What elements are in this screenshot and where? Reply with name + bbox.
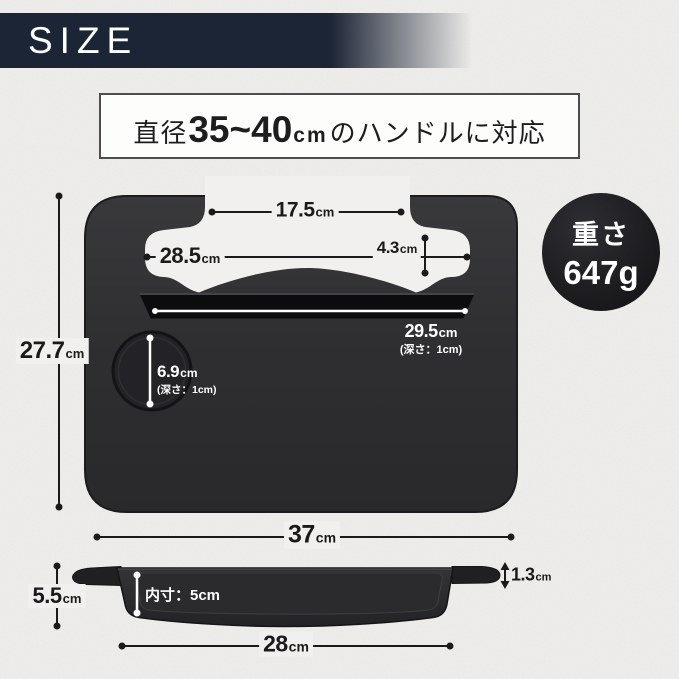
dim-side-height-label: 5.5cm [29, 584, 86, 608]
dim-total-width-label: 37cm [284, 522, 340, 549]
dim-cup-holder-label: 6.9cm (深さ：1cm) [157, 363, 217, 396]
weight-badge: 重さ 647g [542, 193, 660, 311]
product-size-infographic: SIZE 直径 35~40 cm のハンドルに対応 [0, 0, 679, 679]
headline-suffix: のハンドルに対応 [330, 113, 546, 150]
dim-inner-depth-label: 内寸：5cm [145, 588, 220, 603]
dim-pen-tray-label: 29.5cm (深さ：1cm) [371, 322, 491, 356]
pen-tray-slot [140, 295, 474, 319]
side-left-hook-ear [73, 567, 122, 586]
size-banner-title: SIZE [28, 20, 138, 62]
side-right-hook-ear [452, 567, 500, 584]
dim-inner-span-label: 28.5cm [156, 244, 225, 268]
dim-hook-span-label: 17.5cm [272, 199, 339, 222]
headline-range: 35~40 [188, 109, 292, 151]
headline-unit: cm [293, 124, 327, 148]
dim-hook-opening-label: 4.3cm [373, 238, 421, 258]
size-banner: SIZE [0, 13, 472, 68]
dim-line-lip-thickness [501, 562, 510, 589]
dim-bottom-width-label: 28cm [259, 632, 313, 657]
weight-badge-label: 重さ [572, 213, 630, 252]
dim-lip-thickness-label: 1.3cm [511, 566, 551, 585]
headline-prefix: 直径 [133, 113, 187, 150]
headline-box: 直径 35~40 cm のハンドルに対応 [99, 93, 580, 159]
weight-badge-value: 647g [563, 254, 638, 292]
dim-body-height-label: 27.7cm [16, 338, 89, 364]
